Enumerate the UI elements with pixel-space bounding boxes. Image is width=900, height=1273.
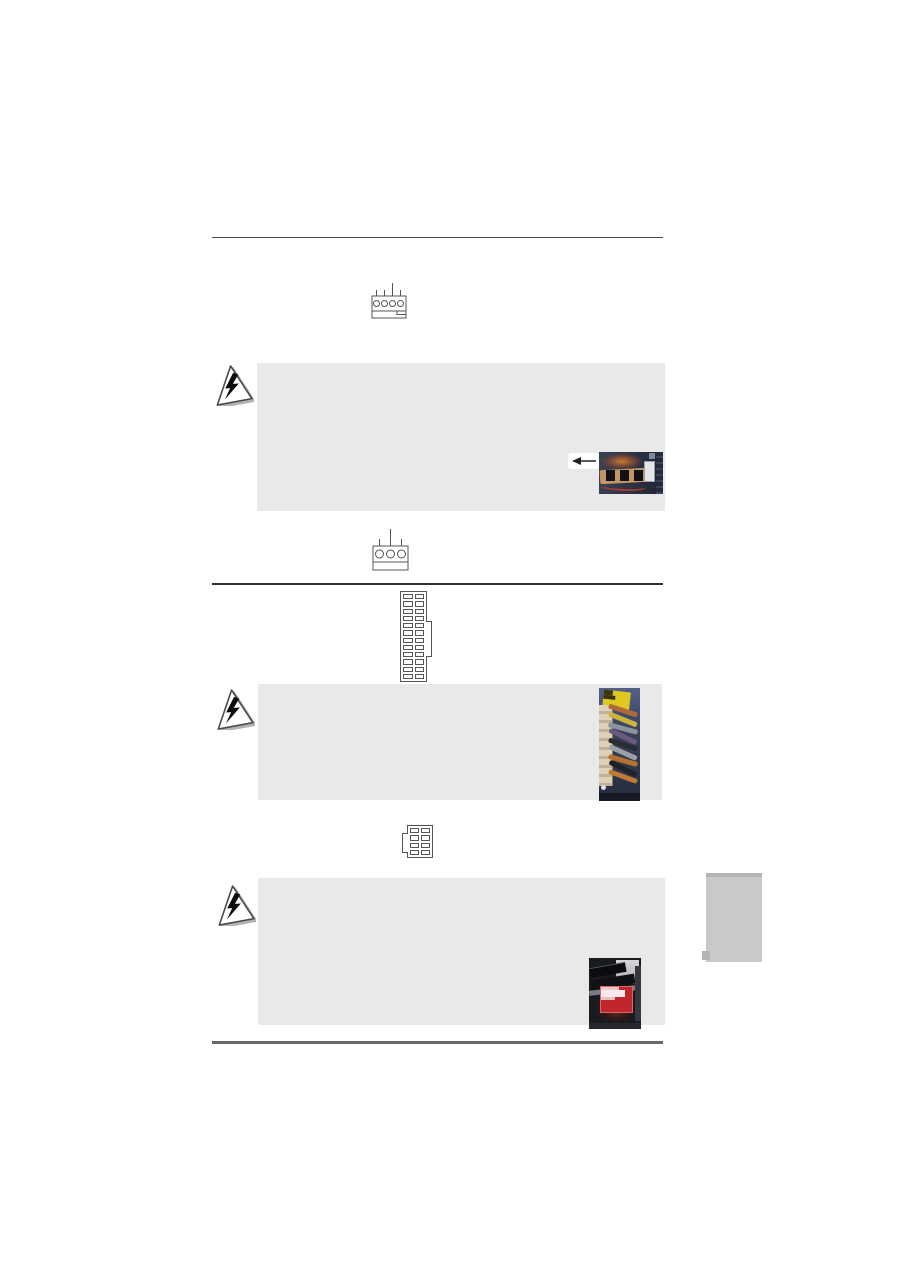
- pin-grid: [401, 592, 426, 681]
- photo-board-edge: [656, 452, 663, 494]
- pin-cell: [415, 594, 425, 599]
- pin-cell: [415, 652, 425, 657]
- photo-wire: [601, 481, 646, 492]
- photo-board-edge: [599, 793, 640, 801]
- sticker-print: [601, 990, 625, 997]
- pin-cell: [410, 835, 419, 840]
- pin-cell: [415, 674, 425, 679]
- photo-board-edge: [589, 1023, 641, 1029]
- pin-cell: [415, 601, 425, 606]
- pin-cell: [403, 652, 413, 657]
- pin-cell: [403, 623, 413, 628]
- pin-cell: [403, 601, 413, 606]
- fan-connector-photo: [599, 452, 663, 494]
- manual-page: [0, 0, 900, 1273]
- atx-power-cable-photo: [599, 688, 640, 801]
- red-sticker: [600, 986, 633, 1013]
- pin-cell: [410, 828, 419, 833]
- sticker-print: [603, 695, 615, 700]
- pin-grid: [408, 826, 432, 857]
- pin-cell: [415, 638, 425, 643]
- photo-detail: [601, 785, 606, 790]
- pin-cell: [415, 609, 425, 614]
- sticker-print: [601, 997, 615, 1000]
- 8pin-power-photo: [589, 958, 641, 1029]
- pin-cell: [410, 850, 419, 855]
- photo-fan-header: [620, 470, 629, 481]
- pin-cell: [415, 645, 425, 650]
- photo-white-component: [644, 461, 655, 482]
- photo-fan-header: [606, 470, 615, 481]
- pin-cell: [415, 616, 425, 621]
- pin-cell: [403, 594, 413, 599]
- pin-cell: [403, 616, 413, 621]
- pin-cell: [421, 835, 430, 840]
- photo-chip: [649, 453, 655, 459]
- warning-lightning-icon: [211, 686, 255, 730]
- side-tab-notch: [702, 951, 710, 960]
- pin-cell: [403, 638, 413, 643]
- warning-lightning-icon: [212, 882, 256, 926]
- pin-cell: [415, 630, 425, 635]
- pin-cell: [403, 609, 413, 614]
- bottom-divider: [212, 1041, 663, 1044]
- pin-cell: [421, 843, 430, 848]
- warning-lightning-icon: [210, 362, 254, 406]
- pin-cell: [415, 659, 425, 664]
- pin-cell: [410, 843, 419, 848]
- pointer-arrow-halo: [568, 453, 599, 469]
- pin-cell: [421, 850, 430, 855]
- section-divider: [212, 583, 663, 585]
- pin-cell: [415, 623, 425, 628]
- latch-tab: [402, 833, 408, 853]
- atx-8pin-connector-diagram: [407, 825, 433, 858]
- pin-cell: [403, 667, 413, 672]
- pin-cell: [403, 630, 413, 635]
- pin-cell: [403, 645, 413, 650]
- photo-board-edge: [635, 966, 641, 1021]
- atx-24pin-connector-diagram: [400, 591, 427, 682]
- pin-cell: [403, 674, 413, 679]
- page-side-tab: [706, 873, 762, 962]
- fan-connector-3pin-diagram: [368, 524, 414, 572]
- left-arrow-icon: [569, 454, 598, 468]
- top-divider: [212, 237, 663, 238]
- fan-connector-4pin-diagram: [370, 281, 410, 321]
- photo-fan-header: [634, 470, 643, 481]
- latch-tab: [426, 621, 432, 657]
- pin-cell: [415, 667, 425, 672]
- pin-cell: [421, 828, 430, 833]
- pin-cell: [403, 659, 413, 664]
